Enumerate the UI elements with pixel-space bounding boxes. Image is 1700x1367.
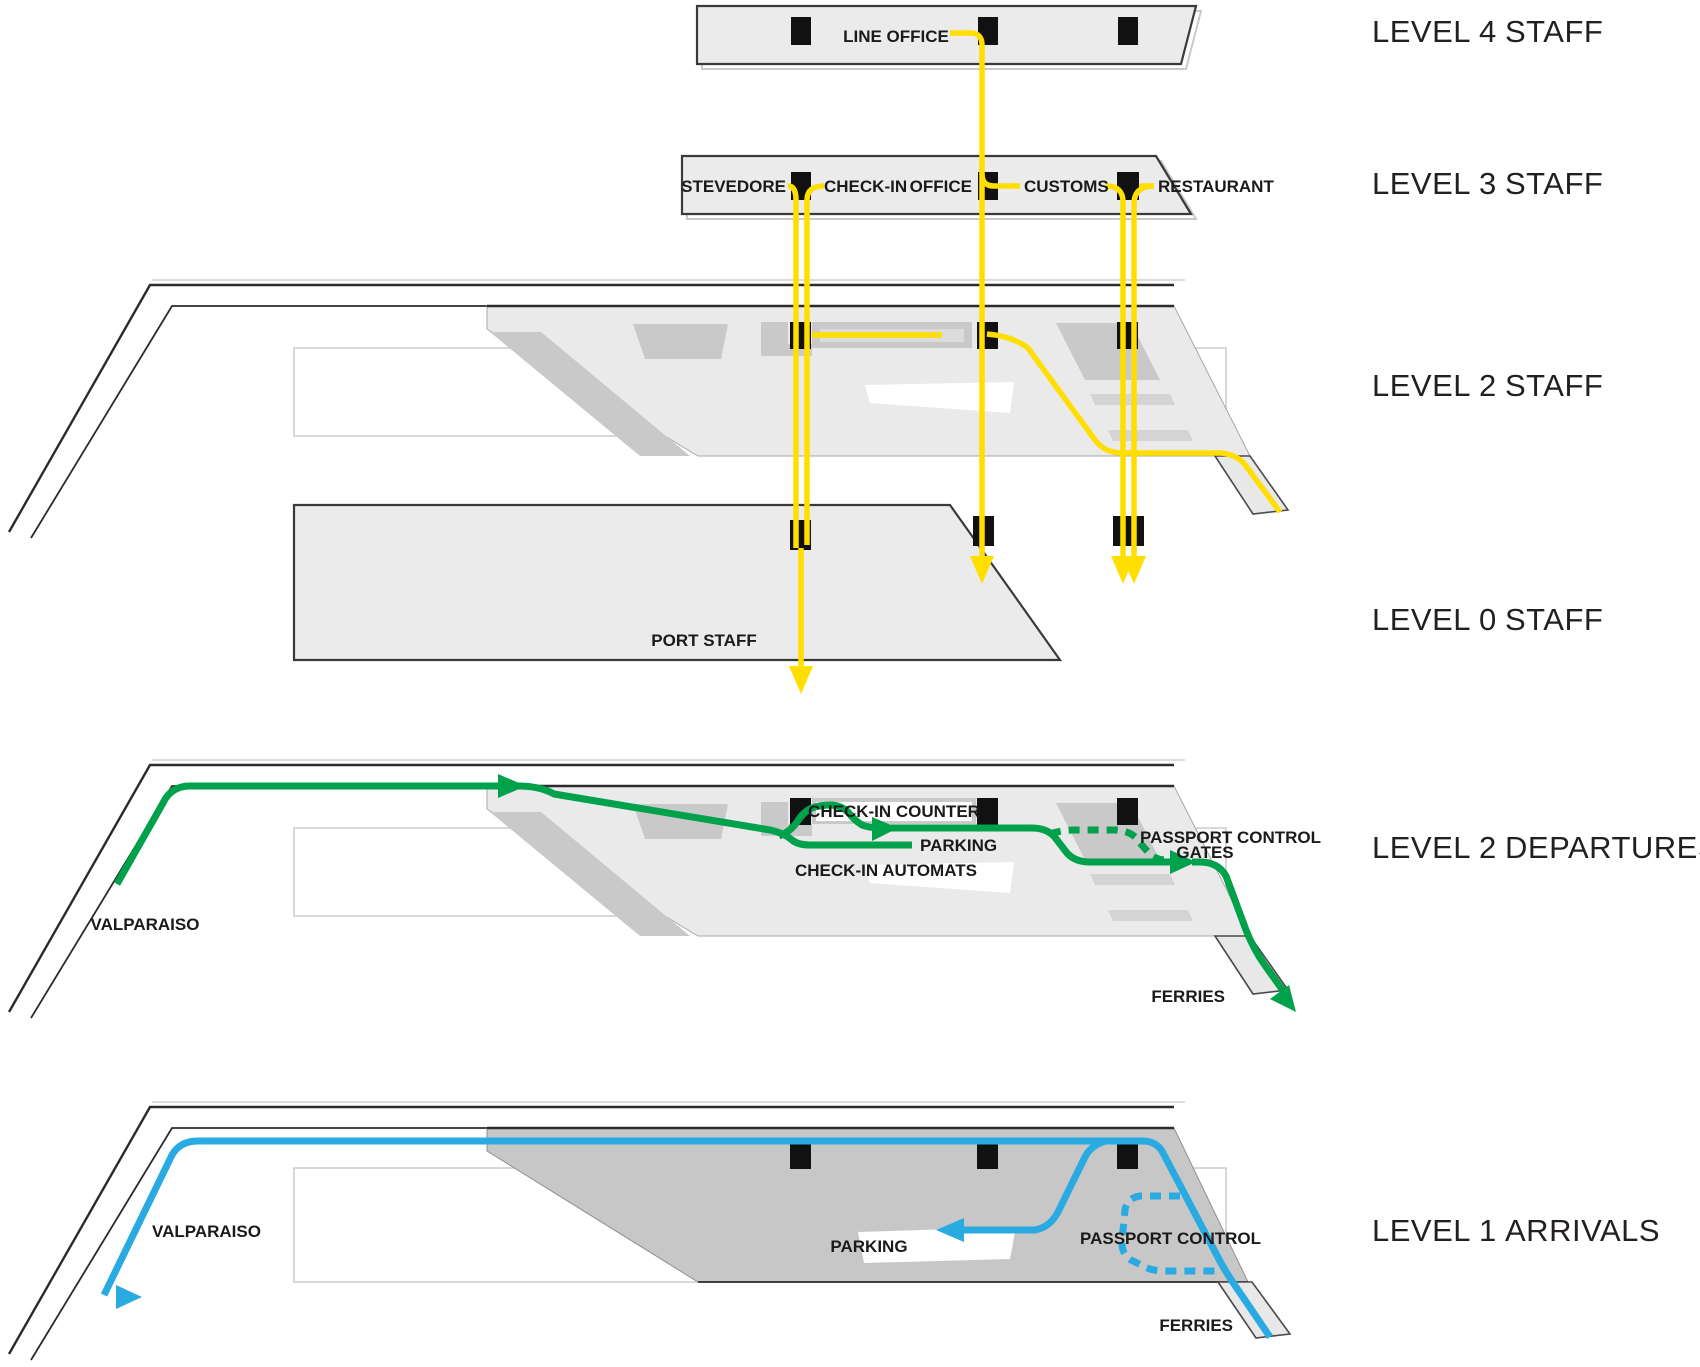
level2d-core-3 [1117, 798, 1138, 825]
label-ferries-departures: FERRIES [1151, 987, 1225, 1006]
level-4-slab-group [697, 6, 1201, 69]
title-level2d-cat: DEPARTURES [1505, 830, 1700, 865]
label-line-office: LINE OFFICE [843, 27, 949, 46]
title-level-2-staff: LEVEL 2STAFF [1372, 368, 1603, 403]
title-level-3-staff: LEVEL 3STAFF [1372, 166, 1603, 201]
title-level2s-cat: STAFF [1505, 368, 1603, 403]
floating-core-right-block [1113, 516, 1144, 546]
label-office: OFFICE [910, 177, 972, 196]
title-level1a-cat: ARRIVALS [1505, 1213, 1660, 1248]
level4-core-3 [1118, 17, 1138, 45]
title-level-0-staff: LEVEL 0STAFF [1372, 602, 1603, 637]
arrivals-arrow-valparaiso [116, 1285, 142, 1309]
level2d-core-2 [977, 798, 998, 825]
level-2-staff-floor-group [9, 280, 1288, 538]
title-level-2-departures: LEVEL 2DEPARTURES [1372, 830, 1700, 865]
label-restaurant: RESTAURANT [1158, 177, 1274, 196]
title-level1a-name: LEVEL 1 [1372, 1213, 1497, 1248]
level-titles: LEVEL 4STAFF LEVEL 3STAFF LEVEL 2STAFF L… [1372, 14, 1700, 1248]
level2s-patch-left [633, 324, 728, 359]
terminal-circulation-diagram: LINE OFFICE STEVEDORE CHECK-IN OFFICE CU… [0, 0, 1700, 1367]
level1a-core-1 [790, 1142, 811, 1169]
title-level-1-arrivals: LEVEL 1ARRIVALS [1372, 1213, 1660, 1248]
level4-core-1 [791, 17, 811, 45]
floating-core-right [1113, 516, 1144, 546]
title-level-4-staff: LEVEL 4STAFF [1372, 14, 1603, 49]
label-ferries-arrivals: FERRIES [1159, 1316, 1233, 1335]
level2d-strip-1 [1090, 874, 1175, 885]
label-gates: GATES [1176, 843, 1233, 862]
title-level0-name: LEVEL 0 [1372, 602, 1497, 637]
label-parking-arrivals: PARKING [830, 1237, 907, 1256]
label-check-in-counter: CHECK-IN COUNTER [808, 802, 980, 821]
label-check-in-automats: CHECK-IN AUTOMATS [795, 861, 977, 880]
label-port-staff: PORT STAFF [651, 631, 756, 650]
label-passport-control-arrivals: PASSPORT CONTROL [1080, 1229, 1261, 1248]
label-customs: CUSTOMS [1024, 177, 1109, 196]
level2d-strip-2 [1108, 910, 1193, 921]
title-level3-cat: STAFF [1505, 166, 1603, 201]
title-level4-cat: STAFF [1505, 14, 1603, 49]
title-level4-name: LEVEL 4 [1372, 14, 1497, 49]
diagram-svg: LINE OFFICE STEVEDORE CHECK-IN OFFICE CU… [0, 0, 1700, 1367]
label-check-in: CHECK-IN [824, 177, 907, 196]
title-level2d-name: LEVEL 2 [1372, 830, 1497, 865]
label-valparaiso-departures: VALPARAISO [91, 915, 200, 934]
title-level3-name: LEVEL 3 [1372, 166, 1497, 201]
level1a-core-3 [1117, 1142, 1138, 1169]
staff-arrow-port [789, 666, 813, 694]
level-2-departures-floor-group [9, 760, 1288, 1018]
label-parking-departures: PARKING [920, 836, 997, 855]
label-valparaiso-arrivals: VALPARAISO [152, 1222, 261, 1241]
title-level0-cat: STAFF [1505, 602, 1603, 637]
title-level2s-name: LEVEL 2 [1372, 368, 1497, 403]
level1a-core-2 [977, 1142, 998, 1169]
label-stevedore: STEVEDORE [681, 177, 786, 196]
